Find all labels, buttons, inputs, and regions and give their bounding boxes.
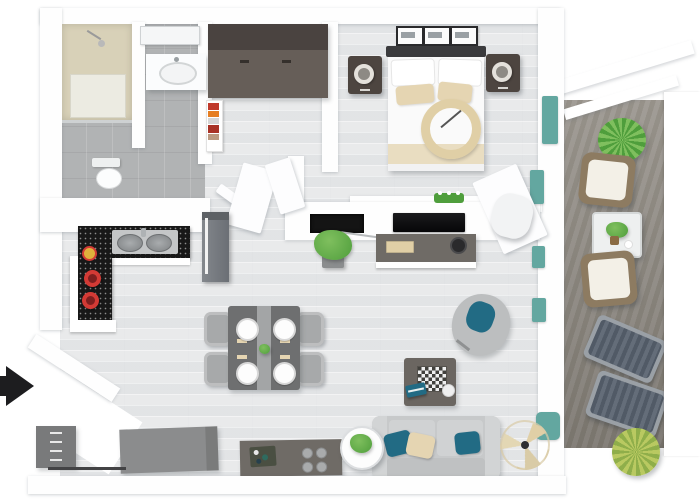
wall-bottom [28,476,566,494]
foreground [0,0,700,500]
floor-plan-scene [0,0,700,500]
entrance-arrow-icon [6,366,34,406]
